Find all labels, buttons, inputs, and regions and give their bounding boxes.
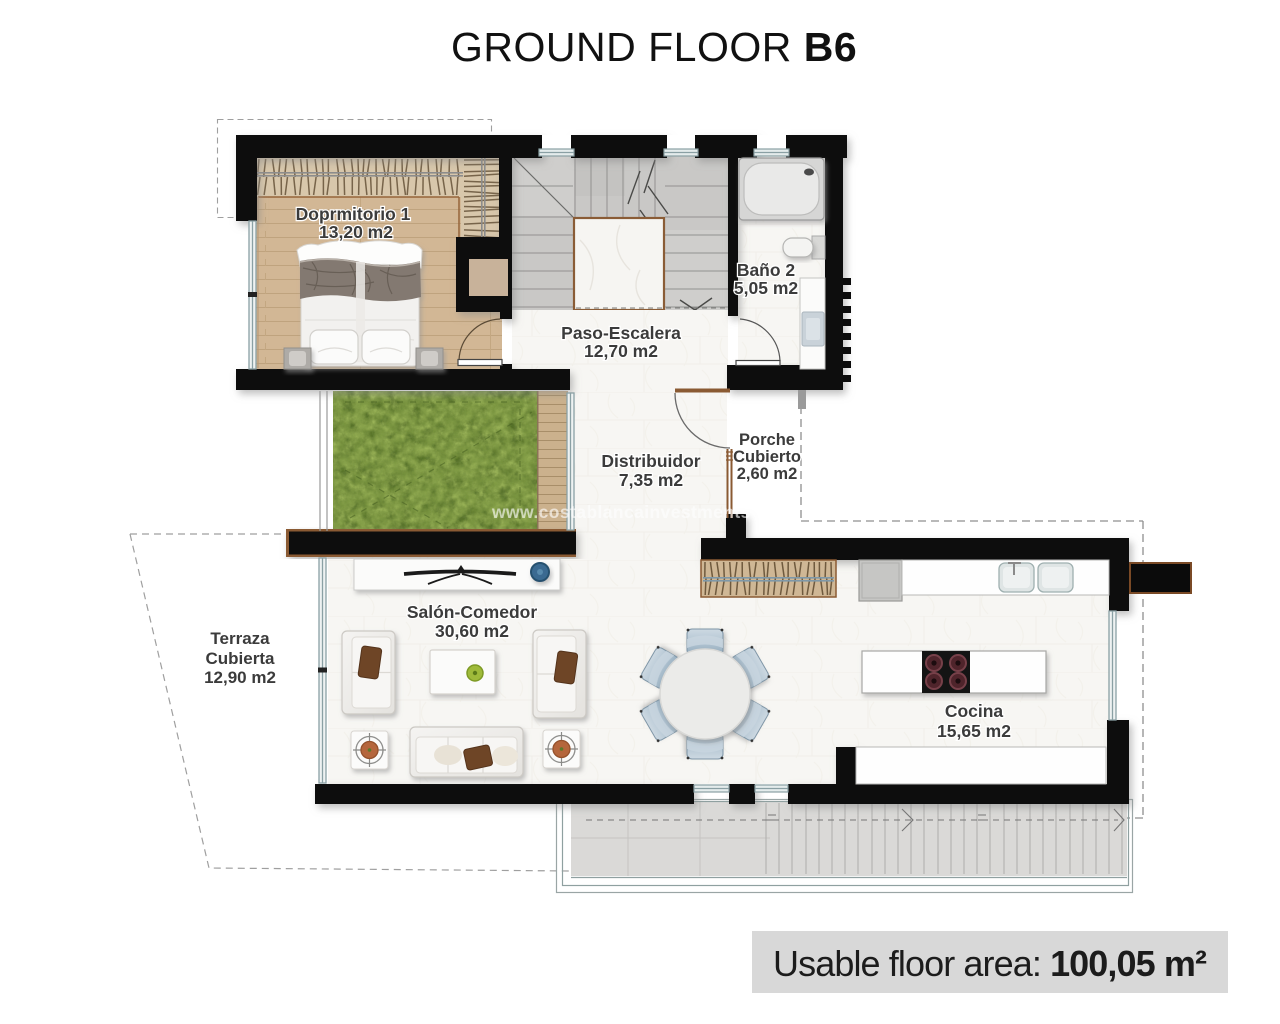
- svg-text:Cubierto: Cubierto: [733, 448, 801, 466]
- svg-text:Distribuidor: Distribuidor: [601, 451, 700, 471]
- svg-text:Salón-Comedor: Salón-Comedor: [407, 602, 537, 622]
- svg-text:13,20 m2: 13,20 m2: [319, 222, 393, 242]
- svg-text:Cubierta: Cubierta: [206, 649, 276, 668]
- svg-text:Usable floor area: 100,05 m²: Usable floor area: 100,05 m²: [773, 943, 1207, 984]
- svg-text:5,05 m2: 5,05 m2: [734, 278, 798, 298]
- svg-text:15,65 m2: 15,65 m2: [937, 721, 1011, 741]
- svg-text:Doprmitorio 1: Doprmitorio 1: [296, 204, 411, 224]
- svg-text:7,35 m2: 7,35 m2: [619, 470, 683, 490]
- svg-text:Baño 2: Baño 2: [737, 260, 796, 280]
- svg-text:Paso-Escalera: Paso-Escalera: [561, 323, 681, 343]
- svg-text:12,70 m2: 12,70 m2: [584, 341, 658, 361]
- svg-text:Porche: Porche: [739, 431, 795, 449]
- svg-text:2,60 m2: 2,60 m2: [737, 465, 798, 483]
- svg-text:12,90 m2: 12,90 m2: [204, 668, 276, 687]
- svg-text:www.costablancainvestments: www.costablancainvestments: [491, 502, 751, 522]
- svg-text:30,60 m2: 30,60 m2: [435, 621, 509, 641]
- svg-text:GROUND FLOOR B6: GROUND FLOOR B6: [451, 24, 857, 70]
- svg-text:Cocina: Cocina: [945, 701, 1004, 721]
- svg-text:Terraza: Terraza: [210, 629, 270, 648]
